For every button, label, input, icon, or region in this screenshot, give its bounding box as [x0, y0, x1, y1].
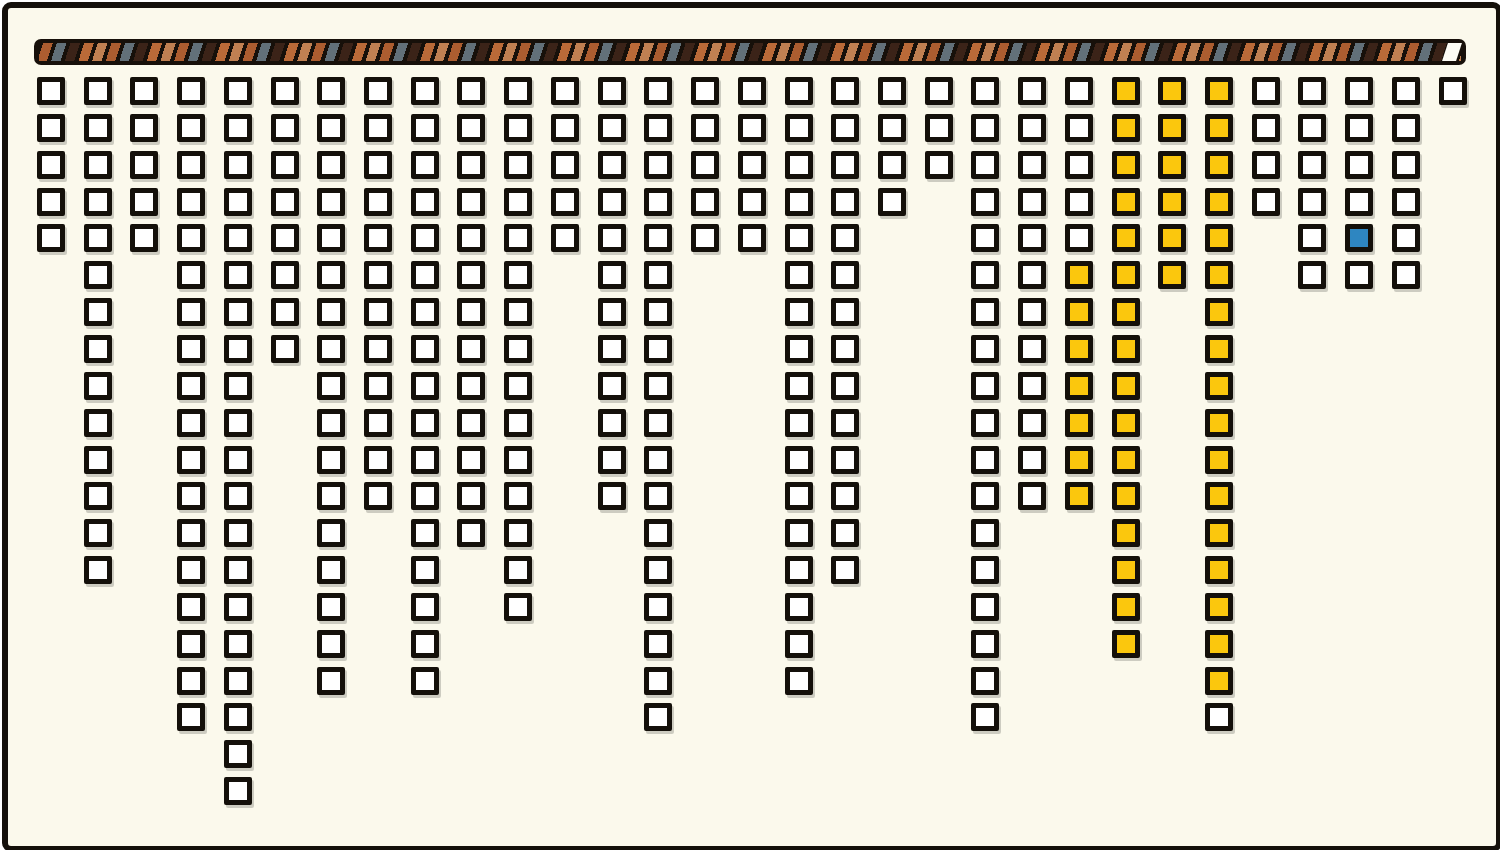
grid-square	[1018, 335, 1046, 363]
grid-square	[317, 77, 345, 105]
grid-square	[1065, 77, 1093, 105]
grid-square	[738, 151, 766, 179]
grid-square	[411, 446, 439, 474]
grid-square	[1205, 77, 1233, 105]
grid-square	[644, 556, 672, 584]
grid-square	[925, 77, 953, 105]
grid-square	[925, 114, 953, 142]
grid-square	[177, 372, 205, 400]
grid-square	[1158, 77, 1186, 105]
grid-square	[317, 188, 345, 216]
grid-square	[364, 188, 392, 216]
grid-square	[457, 446, 485, 474]
grid-square	[84, 188, 112, 216]
grid-square	[971, 446, 999, 474]
grid-square	[785, 261, 813, 289]
grid-square	[644, 224, 672, 252]
grid-square	[224, 703, 252, 731]
grid-square	[411, 630, 439, 658]
striped-rod	[34, 39, 1466, 65]
grid-square	[177, 703, 205, 731]
grid-square	[1018, 188, 1046, 216]
grid-square	[457, 188, 485, 216]
grid-square	[224, 740, 252, 768]
grid-square	[878, 188, 906, 216]
grid-square	[177, 593, 205, 621]
grid-square	[317, 519, 345, 547]
grid-square	[598, 77, 626, 105]
grid-square	[177, 261, 205, 289]
grid-square	[1112, 593, 1140, 621]
grid-square	[130, 151, 158, 179]
grid-square	[551, 188, 579, 216]
grid-square	[644, 703, 672, 731]
grid-square	[1205, 409, 1233, 437]
grid-square	[224, 409, 252, 437]
grid-square	[1112, 372, 1140, 400]
grid-square	[177, 409, 205, 437]
grid-square	[598, 114, 626, 142]
grid-square	[224, 335, 252, 363]
grid-square	[177, 630, 205, 658]
grid-square	[598, 482, 626, 510]
grid-square	[317, 151, 345, 179]
grid-square	[598, 446, 626, 474]
grid-square	[1392, 188, 1420, 216]
grid-square	[364, 298, 392, 326]
grid-square	[504, 482, 532, 510]
grid-square	[364, 446, 392, 474]
grid-square	[878, 114, 906, 142]
grid-square	[364, 372, 392, 400]
grid-square	[1065, 482, 1093, 510]
grid-square	[457, 409, 485, 437]
grid-square	[1298, 188, 1326, 216]
grid-square	[224, 77, 252, 105]
grid-square	[177, 188, 205, 216]
grid-square	[1112, 298, 1140, 326]
grid-square	[1205, 482, 1233, 510]
grid-square	[1065, 114, 1093, 142]
grid-square	[411, 224, 439, 252]
grid-square	[1345, 151, 1373, 179]
grid-square	[224, 667, 252, 695]
rod-stripes	[39, 43, 1461, 61]
grid-square	[785, 151, 813, 179]
grid-square	[1345, 188, 1373, 216]
grid-square	[598, 409, 626, 437]
grid-square	[130, 114, 158, 142]
grid-square	[411, 77, 439, 105]
grid-square	[1345, 261, 1373, 289]
grid-square	[177, 519, 205, 547]
grid-square	[831, 298, 859, 326]
grid-square	[1018, 372, 1046, 400]
grid-square	[317, 409, 345, 437]
grid-square	[1158, 114, 1186, 142]
grid-square	[785, 188, 813, 216]
grid-square	[177, 224, 205, 252]
grid-square	[971, 409, 999, 437]
grid-square	[364, 151, 392, 179]
grid-square	[1112, 261, 1140, 289]
grid-square	[411, 335, 439, 363]
grid-square	[1205, 593, 1233, 621]
grid-square	[84, 261, 112, 289]
grid-square	[1158, 261, 1186, 289]
grid-square	[317, 224, 345, 252]
grid-square	[364, 409, 392, 437]
grid-square	[411, 372, 439, 400]
grid-square	[644, 261, 672, 289]
grid-square	[130, 77, 158, 105]
grid-square	[644, 593, 672, 621]
grid-square	[1018, 114, 1046, 142]
grid-square	[504, 446, 532, 474]
grid-square	[317, 261, 345, 289]
grid-square	[224, 446, 252, 474]
grid-square	[785, 409, 813, 437]
grid-square	[84, 77, 112, 105]
grid-square	[1298, 224, 1326, 252]
grid-square	[224, 114, 252, 142]
grid-square	[84, 151, 112, 179]
grid-square	[457, 261, 485, 289]
grid-square	[317, 556, 345, 584]
grid-square	[224, 519, 252, 547]
grid-square	[224, 151, 252, 179]
grid-square	[1439, 77, 1467, 105]
grid-square	[364, 335, 392, 363]
grid-square	[1345, 77, 1373, 105]
grid-square	[691, 114, 719, 142]
grid-square	[177, 482, 205, 510]
grid-square	[457, 224, 485, 252]
grid-square	[317, 298, 345, 326]
grid-square	[1112, 188, 1140, 216]
grid-square	[831, 556, 859, 584]
grid-square	[598, 224, 626, 252]
grid-square	[1018, 261, 1046, 289]
grid-square	[691, 224, 719, 252]
grid-square	[831, 261, 859, 289]
grid-square	[271, 77, 299, 105]
grid-square	[1018, 409, 1046, 437]
grid-square	[1205, 667, 1233, 695]
grid-square	[457, 114, 485, 142]
grid-square	[1112, 482, 1140, 510]
grid-square	[971, 630, 999, 658]
grid-square	[738, 77, 766, 105]
grid-square	[785, 372, 813, 400]
grid-square	[1298, 261, 1326, 289]
grid-square	[1065, 335, 1093, 363]
grid-square	[84, 482, 112, 510]
grid-square	[317, 114, 345, 142]
grid-square	[504, 188, 532, 216]
grid-square	[504, 519, 532, 547]
grid-square	[1392, 151, 1420, 179]
grid-square	[1392, 261, 1420, 289]
grid-square	[1112, 446, 1140, 474]
grid-square	[504, 261, 532, 289]
grid-square	[1018, 482, 1046, 510]
grid-square	[457, 519, 485, 547]
grid-square	[598, 335, 626, 363]
grid-square	[644, 630, 672, 658]
grid-square	[598, 372, 626, 400]
grid-square	[1112, 519, 1140, 547]
grid-square	[84, 446, 112, 474]
grid-square	[644, 372, 672, 400]
grid-square	[411, 482, 439, 510]
grid-square	[317, 446, 345, 474]
grid-square	[224, 188, 252, 216]
grid-square	[504, 372, 532, 400]
grid-square	[785, 556, 813, 584]
grid-square	[84, 372, 112, 400]
grid-square	[130, 188, 158, 216]
grid-square	[504, 556, 532, 584]
grid-square	[785, 77, 813, 105]
grid-square	[971, 667, 999, 695]
grid-square	[644, 519, 672, 547]
grid-square	[1298, 114, 1326, 142]
grid-square	[878, 77, 906, 105]
grid-square	[84, 556, 112, 584]
grid-square	[37, 114, 65, 142]
grid-square	[785, 298, 813, 326]
grid-square	[457, 335, 485, 363]
grid-square	[457, 298, 485, 326]
grid-square	[84, 298, 112, 326]
grid-square	[785, 593, 813, 621]
grid-square	[1065, 298, 1093, 326]
grid-square	[1112, 335, 1140, 363]
grid-square	[224, 777, 252, 805]
grid-square	[1252, 151, 1280, 179]
grid-square	[1112, 77, 1140, 105]
grid-square	[84, 114, 112, 142]
grid-square	[831, 224, 859, 252]
grid-square	[271, 188, 299, 216]
grid-square	[785, 446, 813, 474]
grid-square	[831, 77, 859, 105]
grid-square	[1252, 114, 1280, 142]
grid-square	[271, 298, 299, 326]
grid-square	[1065, 261, 1093, 289]
grid-square	[644, 409, 672, 437]
grid-square	[177, 114, 205, 142]
grid-square	[598, 298, 626, 326]
grid-square	[644, 482, 672, 510]
grid-square	[598, 151, 626, 179]
grid-square	[1018, 224, 1046, 252]
grid-square	[177, 556, 205, 584]
grid-square	[1065, 188, 1093, 216]
grid-square	[1345, 224, 1373, 252]
grid-square	[364, 261, 392, 289]
grid-square	[738, 114, 766, 142]
grid-square	[224, 372, 252, 400]
grid-square	[177, 446, 205, 474]
grid-square	[177, 298, 205, 326]
grid-square	[785, 482, 813, 510]
grid-square	[504, 77, 532, 105]
grid-square	[1018, 446, 1046, 474]
grid-square	[644, 114, 672, 142]
grid-square	[1112, 409, 1140, 437]
grid-square	[364, 114, 392, 142]
grid-square	[831, 372, 859, 400]
grid-square	[971, 77, 999, 105]
grid-square	[1065, 446, 1093, 474]
grid-square	[971, 482, 999, 510]
grid-square	[457, 77, 485, 105]
grid-square	[37, 151, 65, 179]
grid-square	[224, 593, 252, 621]
grid-square	[551, 114, 579, 142]
grid-square	[1392, 114, 1420, 142]
grid-square	[364, 77, 392, 105]
grid-square	[1112, 630, 1140, 658]
grid-square	[1205, 372, 1233, 400]
grid-square	[504, 298, 532, 326]
grid-square	[1205, 261, 1233, 289]
grid-square	[1205, 335, 1233, 363]
grid-square	[644, 446, 672, 474]
grid-square	[1112, 224, 1140, 252]
grid-square	[504, 224, 532, 252]
grid-square	[317, 667, 345, 695]
grid-square	[84, 519, 112, 547]
grid-square	[1205, 630, 1233, 658]
grid-square	[411, 556, 439, 584]
grid-square	[644, 151, 672, 179]
grid-square	[785, 224, 813, 252]
grid-square	[411, 114, 439, 142]
grid-square	[504, 114, 532, 142]
grid-square	[130, 224, 158, 252]
grid-square	[177, 667, 205, 695]
grid-square	[1158, 188, 1186, 216]
grid-square	[1252, 77, 1280, 105]
grid-square	[1158, 224, 1186, 252]
grid-square	[1205, 151, 1233, 179]
grid-square	[317, 482, 345, 510]
grid-square	[364, 482, 392, 510]
grid-square	[831, 335, 859, 363]
grid-square	[411, 151, 439, 179]
grid-square	[457, 372, 485, 400]
grid-square	[224, 630, 252, 658]
grid-square	[224, 261, 252, 289]
grid-square	[971, 703, 999, 731]
grid-square	[785, 630, 813, 658]
grid-square	[831, 446, 859, 474]
grid-square	[971, 593, 999, 621]
grid-square	[925, 151, 953, 179]
grid-square	[1298, 151, 1326, 179]
grid-square	[971, 298, 999, 326]
grid-square	[317, 593, 345, 621]
grid-square	[971, 372, 999, 400]
grid-square	[504, 151, 532, 179]
grid-square	[971, 556, 999, 584]
grid-square	[411, 261, 439, 289]
grid-square	[457, 482, 485, 510]
grid-square	[271, 224, 299, 252]
grid-square	[177, 335, 205, 363]
grid-square	[971, 335, 999, 363]
grid-square	[504, 409, 532, 437]
grid-square	[644, 298, 672, 326]
grid-square	[271, 335, 299, 363]
grid-square	[271, 114, 299, 142]
grid-square	[738, 188, 766, 216]
grid-square	[785, 114, 813, 142]
grid-square	[504, 335, 532, 363]
grid-square	[411, 519, 439, 547]
grid-square	[1298, 77, 1326, 105]
grid-square	[1392, 77, 1420, 105]
grid-square	[1205, 703, 1233, 731]
grid-square	[364, 224, 392, 252]
grid-square	[84, 224, 112, 252]
grid-square	[831, 482, 859, 510]
grid-square	[551, 151, 579, 179]
grid-square	[1205, 556, 1233, 584]
grid-square	[971, 151, 999, 179]
grid-square	[1205, 114, 1233, 142]
grid-square	[1065, 224, 1093, 252]
grid-square	[224, 224, 252, 252]
grid-square	[785, 335, 813, 363]
grid-square	[644, 188, 672, 216]
grid-square	[1112, 556, 1140, 584]
grid-square	[1205, 298, 1233, 326]
grid-square	[971, 519, 999, 547]
grid-square	[1158, 151, 1186, 179]
grid-square	[317, 372, 345, 400]
grid-square	[785, 667, 813, 695]
grid-square	[691, 188, 719, 216]
grid-square	[691, 151, 719, 179]
grid-square	[644, 667, 672, 695]
grid-square	[1252, 188, 1280, 216]
grid-square	[271, 261, 299, 289]
grid-square	[224, 298, 252, 326]
grid-square	[411, 593, 439, 621]
grid-square	[831, 188, 859, 216]
grid-square	[1018, 298, 1046, 326]
grid-square	[317, 335, 345, 363]
grid-square	[37, 224, 65, 252]
grid-square	[831, 151, 859, 179]
grid-square	[411, 298, 439, 326]
grid-square	[1205, 188, 1233, 216]
grid-square	[37, 188, 65, 216]
grid-square	[878, 151, 906, 179]
grid-square	[1065, 151, 1093, 179]
grid-square	[1205, 224, 1233, 252]
grid-square	[971, 224, 999, 252]
grid-square	[1205, 446, 1233, 474]
grid-square	[224, 556, 252, 584]
grid-square	[411, 188, 439, 216]
grid-square	[457, 151, 485, 179]
grid-square	[1205, 519, 1233, 547]
